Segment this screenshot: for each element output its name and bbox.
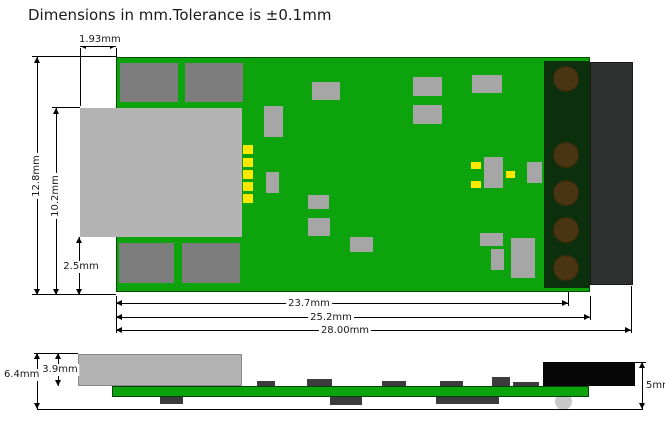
terminal-block-top (544, 61, 590, 288)
side-component (307, 379, 332, 386)
smd-component (264, 106, 283, 137)
arrowhead (55, 380, 61, 386)
side-component (257, 381, 275, 386)
dim-label-to-pin-centers: 23.7mm (286, 298, 332, 310)
side-component (440, 381, 463, 386)
solder-pad (506, 171, 515, 178)
smd-component (511, 238, 535, 278)
arrowhead (639, 362, 645, 368)
terminal-pin-hole (553, 142, 579, 168)
terminal-pin-hole (553, 255, 579, 281)
pcb-board-side (112, 386, 589, 397)
arrowhead (34, 57, 40, 63)
dim-label-overall-length: 28.00mm (319, 325, 371, 337)
extension-line (32, 56, 116, 57)
arrowhead (34, 353, 40, 359)
solder-pad (243, 158, 253, 167)
extension-line (590, 296, 591, 320)
solder-pad (243, 182, 253, 191)
smd-component (308, 195, 329, 209)
dim-label-board-width: 12.8mm (31, 153, 43, 199)
smd-component (413, 105, 442, 124)
usb-connector-side (78, 354, 242, 386)
extension-line (116, 48, 117, 57)
side-component (330, 397, 362, 405)
arrowhead (76, 237, 82, 243)
smd-component (413, 77, 442, 96)
dim-label-bottom-margin: 2.5mm (61, 261, 100, 273)
solder-pad (243, 145, 253, 154)
smd-component (491, 249, 504, 270)
dim-label-connector-span: 10.2mm (50, 173, 62, 219)
smd-component (480, 233, 503, 246)
side-component (513, 382, 539, 386)
dimension-line (642, 362, 643, 409)
terminal-housing (590, 62, 633, 285)
smd-component (527, 162, 542, 183)
mount-pad (119, 243, 174, 283)
smd-component (266, 172, 279, 193)
arrowhead (639, 403, 645, 409)
baseline (37, 409, 643, 410)
dim-label-connector-height: 3.9mm (40, 364, 79, 376)
side-component (436, 397, 499, 404)
smd-component (484, 157, 503, 188)
smd-component (472, 75, 502, 93)
solder-pad (471, 162, 481, 169)
dim-label-board-length: 25.2mm (308, 312, 354, 324)
arrowhead (34, 289, 40, 295)
solder-pad (471, 181, 481, 188)
terminal-block-side (543, 362, 635, 386)
dim-label-connector-overhang: 1.93mm (77, 34, 123, 46)
arrowhead (53, 108, 59, 114)
extension-line (568, 290, 569, 306)
arrowhead (76, 289, 82, 295)
drawing-title: Dimensions in mm.Tolerance is ±0.1mm (28, 5, 331, 25)
usb-connector (80, 108, 242, 237)
arrowhead (625, 327, 631, 333)
extension-line (32, 294, 116, 295)
side-component (160, 397, 183, 404)
terminal-pin-hole (553, 66, 579, 92)
technical-drawing: Dimensions in mm.Tolerance is ±0.1mm (0, 0, 665, 421)
arrowhead (53, 289, 59, 295)
side-component (382, 381, 406, 386)
dim-label-terminal-height: 5mm (644, 380, 665, 392)
smd-component (308, 218, 330, 236)
smd-component (312, 82, 340, 100)
arrowhead (116, 327, 122, 333)
dim-label-overall-height: 6.4mm (2, 369, 41, 381)
side-component (492, 377, 510, 386)
solder-pad (243, 170, 253, 179)
arrowhead (584, 314, 590, 320)
arrowhead (55, 353, 61, 359)
mount-pad (120, 63, 178, 102)
arrowhead (562, 300, 568, 306)
smd-component (350, 237, 373, 252)
dimension-line (37, 353, 38, 409)
terminal-pin-hole (553, 180, 579, 206)
extension-line (631, 286, 632, 333)
mount-pad (182, 243, 240, 283)
solder-pad (243, 194, 253, 203)
terminal-pin-hole (553, 217, 579, 243)
mount-pad (185, 63, 243, 102)
dimension-line (116, 303, 568, 304)
dimension-line (116, 330, 631, 331)
